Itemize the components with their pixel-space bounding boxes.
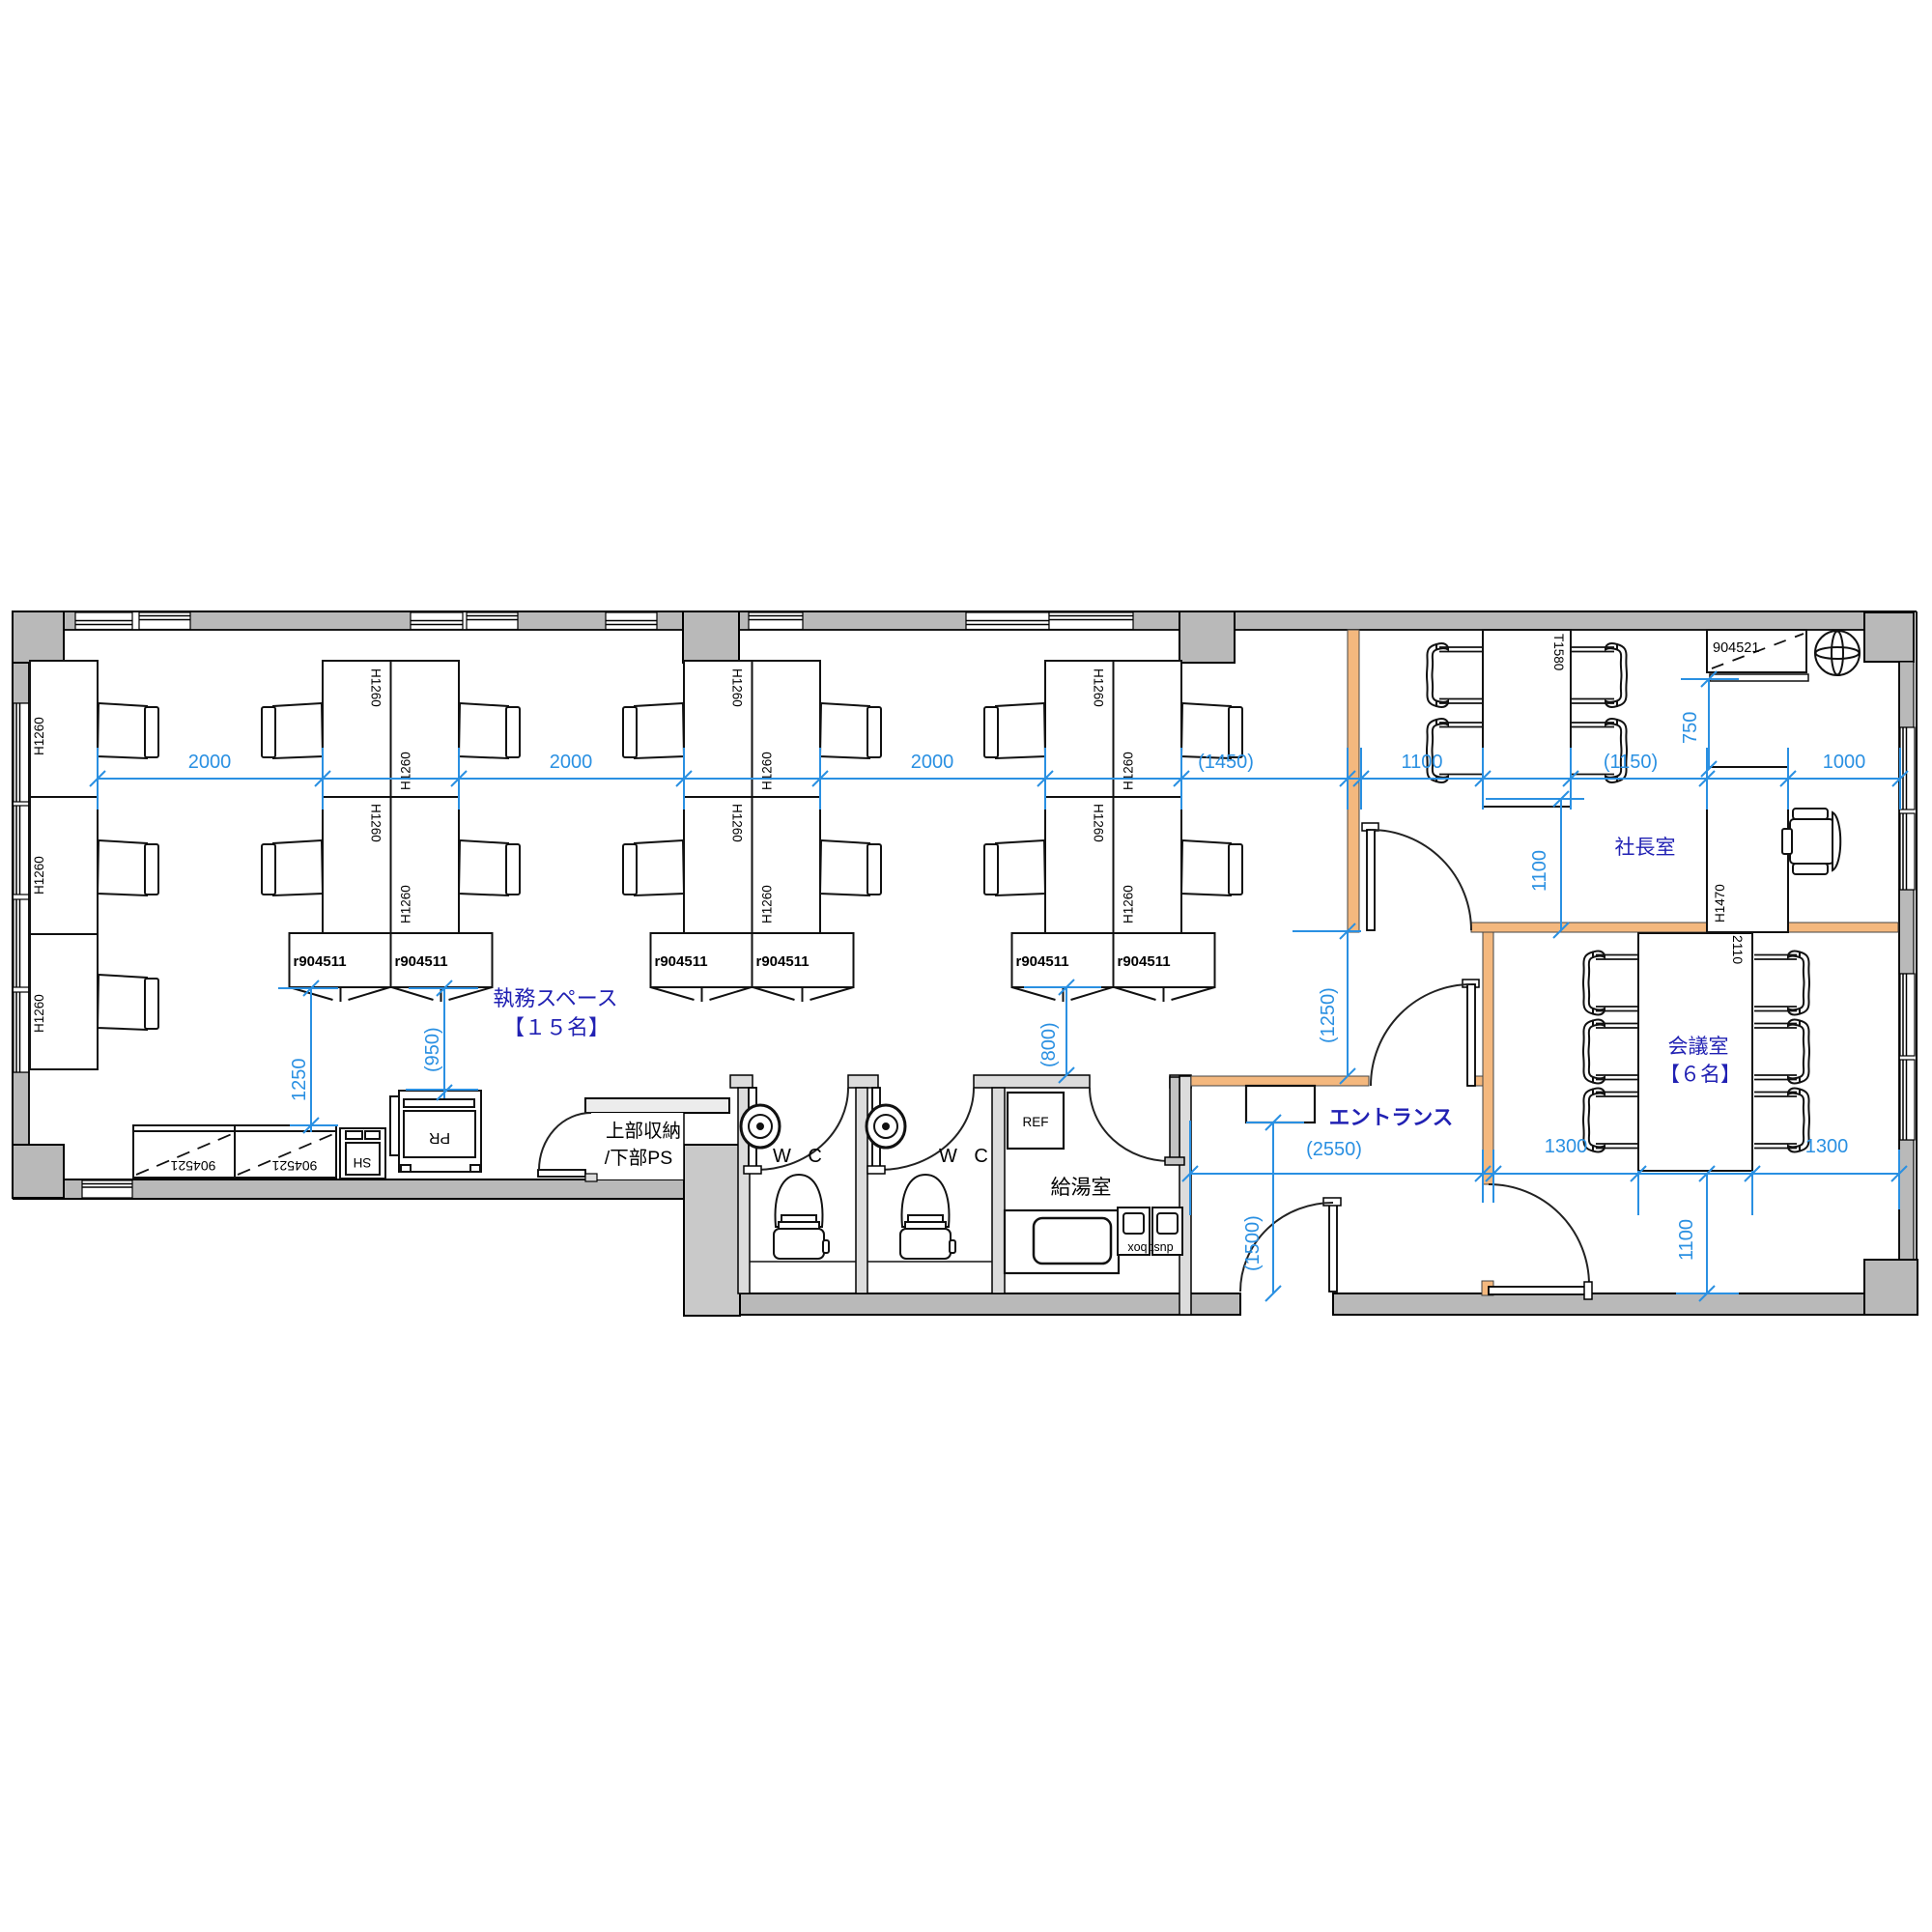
- svg-text:H1260: H1260: [760, 752, 775, 790]
- svg-text:SH: SH: [354, 1155, 372, 1170]
- svg-text:1300: 1300: [1545, 1136, 1588, 1157]
- svg-text:1100: 1100: [1676, 1219, 1697, 1261]
- svg-text:H1260: H1260: [1122, 885, 1136, 923]
- svg-text:H1470: H1470: [1713, 884, 1727, 923]
- svg-text:r904511: r904511: [395, 953, 448, 970]
- svg-text:給湯室: 給湯室: [1051, 1177, 1112, 1199]
- svg-text:執務スペース: 執務スペース: [493, 986, 617, 1010]
- svg-text:H1260: H1260: [369, 804, 384, 842]
- svg-text:r904511: r904511: [1118, 953, 1171, 970]
- svg-text:1300: 1300: [1805, 1136, 1849, 1157]
- svg-text:H1260: H1260: [1122, 752, 1136, 790]
- svg-text:(1450): (1450): [1198, 752, 1254, 773]
- svg-text:904521: 904521: [271, 1158, 317, 1174]
- svg-text:H1260: H1260: [730, 668, 745, 707]
- svg-text:1000: 1000: [1823, 752, 1866, 773]
- svg-text:(1150): (1150): [1604, 752, 1658, 773]
- svg-text:2000: 2000: [550, 752, 593, 773]
- svg-text:r904511: r904511: [1016, 953, 1069, 970]
- svg-text:1100: 1100: [1529, 850, 1550, 892]
- svg-text:904521: 904521: [1713, 640, 1759, 656]
- svg-text:1100: 1100: [1401, 752, 1442, 773]
- svg-text:W C: W C: [939, 1146, 994, 1167]
- svg-text:904521: 904521: [170, 1158, 215, 1174]
- svg-text:r904511: r904511: [294, 953, 347, 970]
- svg-text:(1500): (1500): [1242, 1215, 1264, 1271]
- svg-text:H1260: H1260: [399, 752, 413, 790]
- svg-text:(950): (950): [422, 1027, 443, 1072]
- svg-text:会議室: 会議室: [1668, 1036, 1729, 1058]
- svg-text:上部収納: 上部収納: [606, 1121, 681, 1142]
- svg-text:/下部PS: /下部PS: [605, 1148, 672, 1169]
- svg-text:H1260: H1260: [1092, 804, 1106, 842]
- svg-text:1250: 1250: [289, 1059, 310, 1102]
- svg-text:社長室: 社長室: [1615, 837, 1676, 859]
- svg-text:PR: PR: [429, 1129, 450, 1146]
- svg-text:T1580: T1580: [1551, 634, 1566, 670]
- svg-text:750: 750: [1680, 712, 1701, 744]
- svg-text:2000: 2000: [188, 752, 232, 773]
- svg-text:dust box: dust box: [1127, 1241, 1174, 1255]
- svg-text:REF: REF: [1023, 1115, 1049, 1129]
- svg-text:2110: 2110: [1730, 935, 1746, 964]
- svg-text:エントランス: エントランス: [1329, 1106, 1454, 1129]
- svg-text:(1250): (1250): [1318, 987, 1339, 1043]
- svg-text:H1260: H1260: [32, 994, 46, 1033]
- svg-text:H1260: H1260: [369, 668, 384, 707]
- svg-text:H1260: H1260: [32, 856, 46, 895]
- svg-text:H1260: H1260: [730, 804, 745, 842]
- svg-text:r904511: r904511: [655, 953, 708, 970]
- svg-text:W C: W C: [773, 1146, 828, 1167]
- svg-text:r904511: r904511: [756, 953, 810, 970]
- svg-text:H1260: H1260: [32, 717, 46, 755]
- svg-text:(2550): (2550): [1306, 1139, 1362, 1160]
- svg-text:(800): (800): [1038, 1022, 1060, 1067]
- svg-text:【６名】: 【６名】: [1660, 1064, 1741, 1086]
- svg-text:H1260: H1260: [399, 885, 413, 923]
- svg-text:H1260: H1260: [1092, 668, 1106, 707]
- svg-text:2000: 2000: [911, 752, 954, 773]
- svg-text:H1260: H1260: [760, 885, 775, 923]
- svg-text:【１５名】: 【１５名】: [503, 1015, 610, 1039]
